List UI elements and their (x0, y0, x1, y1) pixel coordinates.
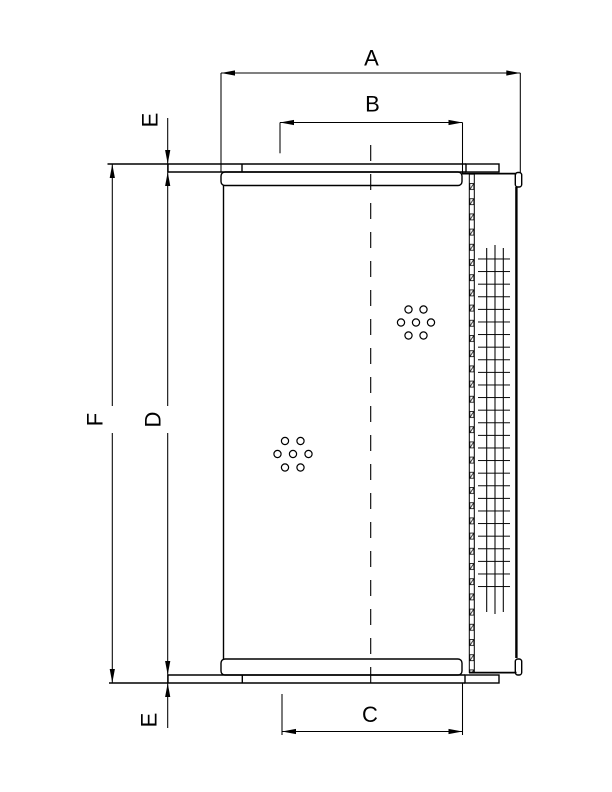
dim-label-e-top: E (138, 113, 163, 128)
filter-mesh (478, 245, 510, 614)
dim-label-c: C (362, 702, 378, 727)
dim-label-b: B (365, 92, 380, 117)
dim-label-d: D (141, 412, 166, 428)
dim-label-a: A (364, 46, 379, 71)
dim-label-e-bottom: E (137, 713, 162, 728)
dim-label-f: F (83, 413, 108, 426)
technical-drawing: A B C F E D E (0, 0, 612, 792)
perforated-core-tube (469, 174, 474, 673)
